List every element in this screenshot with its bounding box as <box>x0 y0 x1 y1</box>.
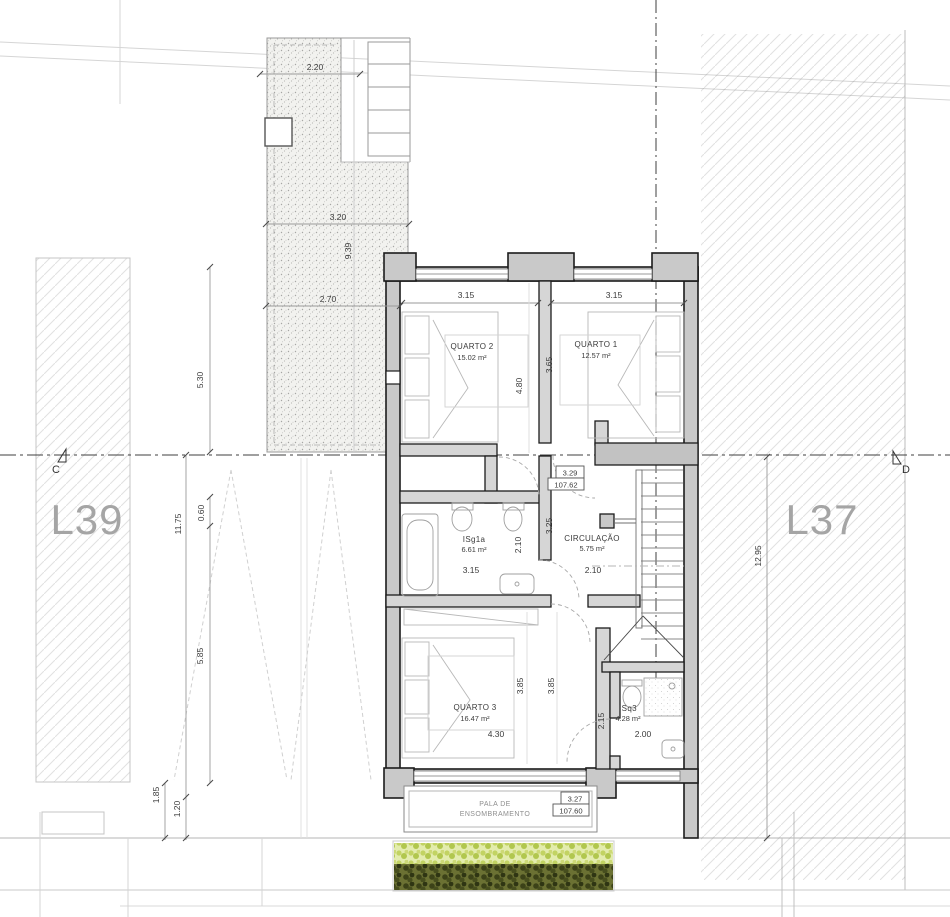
lot-l37-hatch <box>701 34 905 880</box>
room-area-quarto3: 16.47 m² <box>460 714 490 723</box>
dim-left-bottom-a: 1.85 <box>151 786 161 803</box>
pala-label-line1: PALA DE <box>479 801 510 808</box>
room-area-circulacao: 5.75 m² <box>579 544 605 553</box>
bathtub <box>402 514 438 596</box>
level-lower-elevation: 107.60 <box>559 807 582 816</box>
terrace-skylight <box>265 118 292 146</box>
room-label-circulacao: CIRCULAÇÃO <box>564 534 619 543</box>
dim-right-total: 12.95 <box>753 545 763 567</box>
vegetation-strip <box>393 841 614 891</box>
toilet-isg1a <box>452 503 473 531</box>
closet-quarto3 <box>404 609 538 625</box>
dim-left-total: 11.75 <box>173 513 183 534</box>
wall-q3-right <box>596 628 610 769</box>
sink-isg1a <box>500 574 534 594</box>
wall-below-q2 <box>400 444 497 456</box>
wall-column-marker <box>386 371 400 384</box>
room-label-quarto3: QUARTO 3 <box>453 703 496 712</box>
dim-terrace-mid: 3.20 <box>330 212 347 222</box>
lot-label-l39: L39 <box>50 496 123 543</box>
wall-isq3-top <box>602 662 684 672</box>
pergola-ladder <box>368 42 410 156</box>
bed-quarto3 <box>402 638 514 758</box>
wall-bath-top <box>400 491 540 503</box>
floor-plan-drawing: PALA DE ENSOMBRAMENTO 3.29 107.62 3.27 1… <box>0 0 950 917</box>
bed-quarto2 <box>402 312 528 442</box>
room-area-quarto2: 15.02 m² <box>457 353 487 362</box>
wall-below-q1 <box>595 443 698 465</box>
wall-bath-bottom <box>386 595 551 607</box>
level-upper-value: 3.29 <box>563 469 578 478</box>
wall-isq3-left-lower <box>610 756 620 769</box>
dim-q2-width: 3.15 <box>458 290 475 300</box>
room-label-quarto1: QUARTO 1 <box>574 340 617 349</box>
dim-bath-depth: 2.10 <box>513 536 523 553</box>
bidet-isg1a <box>503 503 524 531</box>
sink-isq3 <box>662 740 684 758</box>
level-upper-elevation: 107.62 <box>554 481 577 490</box>
wall-left <box>386 267 400 783</box>
wall-right <box>684 267 698 838</box>
section-marker-c: C <box>52 464 60 476</box>
level-marker-upper: 3.29 107.62 <box>548 466 584 490</box>
room-label-quarto2: QUARTO 2 <box>450 342 493 351</box>
dim-q3-depth-b: 3.85 <box>546 677 556 694</box>
dim-q3-depth-a: 3.85 <box>515 677 525 694</box>
room-area-isq3: 4.28 m² <box>615 714 641 723</box>
dim-terrace-top: 2.20 <box>307 62 324 72</box>
stair-void-lines <box>604 616 684 660</box>
door-arc-bath <box>539 560 579 600</box>
dim-isq3-depth: 2.15 <box>596 712 606 729</box>
pala-label-line2: ENSOMBRAMENTO <box>460 811 531 818</box>
dim-bath-width: 3.15 <box>463 565 480 575</box>
dim-left-offset: 0.60 <box>196 504 206 521</box>
pier-top-right <box>652 253 698 281</box>
dim-q3-width: 4.30 <box>488 729 505 739</box>
dim-left-upper: 5.30 <box>195 371 205 388</box>
dim-q1-width: 3.15 <box>606 290 623 300</box>
dim-circ-width: 2.10 <box>585 565 602 575</box>
dim-q2-depth: 4.80 <box>514 377 524 394</box>
section-marker-d: D <box>902 464 910 476</box>
level-lower-value: 3.27 <box>568 795 583 804</box>
pier-top-left <box>384 253 416 281</box>
dim-left-lower: 5.85 <box>195 647 205 664</box>
stair-newel-post <box>600 514 614 528</box>
wall-bath-circ <box>539 456 551 560</box>
room-area-isg1a: 6.61 m² <box>461 545 487 554</box>
room-label-isg1a: ISg1a <box>463 535 486 544</box>
dim-left-bottom-b: 1.20 <box>172 800 182 817</box>
dim-circ-depth: 3.25 <box>544 517 554 534</box>
room-area-quarto1: 12.57 m² <box>581 351 611 360</box>
dim-terrace-low: 2.70 <box>320 294 337 304</box>
dim-isq3-width: 2.00 <box>635 729 652 739</box>
pier-top-center <box>508 253 574 281</box>
shower-isq3 <box>644 678 682 716</box>
room-label-isq3: ISq3 <box>619 704 637 713</box>
dim-q1-depth: 3.65 <box>544 356 554 373</box>
lot-label-l37: L37 <box>785 496 858 543</box>
bed-quarto1 <box>560 312 684 438</box>
dim-terrace-height: 9.39 <box>343 242 353 259</box>
floor-plan-canvas: PALA DE ENSOMBRAMENTO 3.29 107.62 3.27 1… <box>0 0 950 917</box>
